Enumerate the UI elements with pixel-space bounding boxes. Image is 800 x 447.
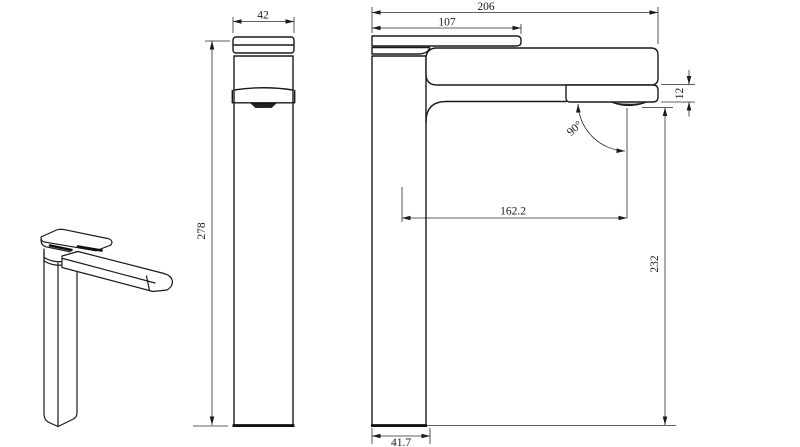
isometric-view: [41, 229, 172, 426]
dim-value-162-2: 162.2: [500, 206, 526, 218]
technical-drawing-page: 42 278 20: [0, 0, 800, 447]
side-spout-tip: [566, 85, 658, 102]
side-underspout-curve: [426, 102, 566, 123]
dim-value-41-7: 41.7: [391, 437, 411, 447]
dim-front-height: 278: [193, 41, 230, 426]
side-spout-beam: [426, 48, 658, 85]
side-view: 206 107 12 90° 162.2: [371, 1, 695, 447]
dim-side-handle: 107: [372, 17, 521, 35]
faucet-drawing-canvas: 42 278 20: [0, 0, 800, 447]
dim-value-107: 107: [438, 17, 456, 29]
dim-value-206: 206: [477, 1, 495, 13]
angle-arc: [578, 104, 625, 151]
iso-column-right-edge: [58, 257, 77, 427]
dim-spout-reach: 162.2: [402, 187, 627, 222]
dim-front-width: 42: [233, 10, 294, 34]
dim-value-232: 232: [649, 255, 661, 273]
dim-base-depth: 41.7: [372, 428, 430, 447]
front-aerator: [251, 103, 276, 107]
front-body: [234, 56, 293, 425]
dim-value-278: 278: [196, 222, 208, 240]
front-view: 42 278: [193, 10, 295, 427]
dim-value-42: 42: [257, 10, 269, 22]
side-handle-lever: [372, 36, 521, 46]
iso-column-left-edge: [44, 249, 58, 427]
dim-spout-angle: 90°: [565, 104, 625, 151]
iso-spout-slab: [62, 252, 172, 292]
dim-outlet-height: 232: [642, 108, 673, 426]
side-aerator: [612, 103, 646, 106]
side-column: [372, 56, 426, 425]
side-handle-pivot: [372, 48, 430, 55]
dim-spout-thickness: 12: [661, 70, 695, 117]
dim-value-12: 12: [674, 88, 686, 100]
